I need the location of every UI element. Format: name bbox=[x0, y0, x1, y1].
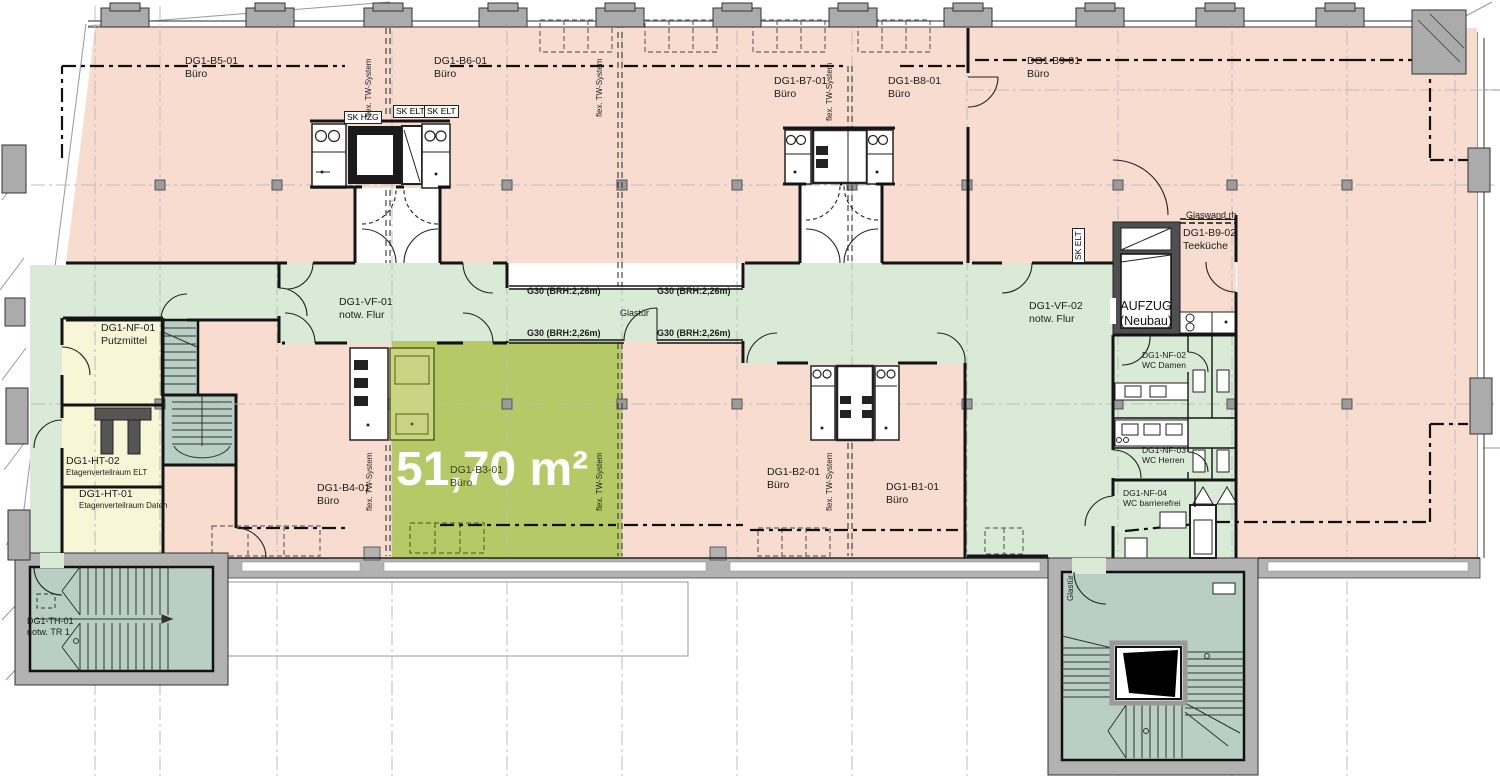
room-type: Büro bbox=[886, 494, 939, 507]
fire-rating-label: G30 (BRH:2,26m) bbox=[657, 328, 731, 338]
room-type: Büro bbox=[450, 477, 503, 490]
flex-tw-label: flex. TW-System bbox=[365, 453, 374, 511]
elevator-name: AUFZUG bbox=[1117, 299, 1175, 314]
room-label-dg1-nf-04: DG1-NF-04WC barrierefrei bbox=[1123, 488, 1181, 508]
flex-tw-label: flex. TW-System bbox=[364, 59, 373, 117]
room-type: Büro bbox=[888, 88, 941, 101]
room-type: Etagenverteilraum Daten bbox=[79, 501, 168, 511]
glass-door-label: Glastür bbox=[620, 308, 649, 319]
room-id: DG1-B4-01 bbox=[317, 482, 370, 495]
room-label-dg1-b3-01: DG1-B3-01Büro bbox=[450, 464, 503, 490]
plan-drawing bbox=[0, 0, 1500, 782]
room-id: DG1-VF-01 bbox=[339, 296, 393, 309]
room-type: WC barrierefrei bbox=[1123, 498, 1181, 508]
fire-rating-label: G30 (BRH:2,26m) bbox=[527, 286, 601, 296]
room-type: Büro bbox=[185, 68, 238, 81]
room-label-dg1-b4-01: DG1-B4-01Büro bbox=[317, 482, 370, 508]
room-type: Büro bbox=[1027, 68, 1080, 81]
room-label-dg1-b6-01: DG1-B6-01Büro bbox=[434, 55, 487, 81]
room-id: DG1-B8-01 bbox=[888, 75, 941, 88]
room-type: notw. TR 1 bbox=[27, 627, 74, 638]
room-id: DG1-B6-01 bbox=[434, 55, 487, 68]
room-id: DG1-VF-02 bbox=[1029, 300, 1083, 313]
elevator-note: (Neubau) bbox=[1117, 314, 1175, 329]
room-dg1-b5-b9-topband-area[interactable] bbox=[66, 28, 1477, 263]
room-label-dg1-b7-01: DG1-B7-01Büro bbox=[774, 75, 827, 101]
room-id: DG1-NF-03 bbox=[1142, 445, 1186, 455]
room-label-dg1-vf-02: DG1-VF-02notw. Flur bbox=[1029, 300, 1083, 326]
room-type: Teeküche bbox=[1183, 240, 1236, 253]
room-label-dg1-nf-02: DG1-NF-02WC Damen bbox=[1142, 350, 1186, 370]
room-fills bbox=[30, 28, 1477, 558]
room-type: Putzmittel bbox=[101, 335, 155, 348]
room-id: DG1-TH-01 bbox=[27, 616, 74, 627]
room-type: Büro bbox=[317, 495, 370, 508]
room-id: DG1-B9-02 bbox=[1183, 227, 1236, 240]
room-type: Büro bbox=[767, 479, 820, 492]
shaft-label-elt: SK ELT bbox=[424, 105, 459, 118]
room-label-dg1-nf-03: DG1-NF-03WC Herren bbox=[1142, 445, 1186, 465]
room-id: DG1-HT-01 bbox=[79, 488, 168, 501]
vestibule-b bbox=[800, 184, 882, 263]
flex-tw-label: flex. TW-System bbox=[825, 63, 834, 121]
room-type: Etagenverteilraum ELT bbox=[66, 468, 147, 478]
flex-tw-label: flex. TW-System bbox=[595, 453, 604, 511]
room-type: Büro bbox=[434, 68, 487, 81]
room-type: WC Damen bbox=[1142, 360, 1186, 370]
room-label-dg1-b9-01: DG1-B9-01Büro bbox=[1027, 55, 1080, 81]
room-id: DG1-NF-01 bbox=[101, 322, 155, 335]
floor-plan: DG1-B5-01Büro DG1-B6-01Büro DG1-B7-01Bür… bbox=[0, 0, 1500, 782]
room-type: Büro bbox=[774, 88, 827, 101]
room-label-dg1-b5-01: DG1-B5-01Büro bbox=[185, 55, 238, 81]
room-id: DG1-B2-01 bbox=[767, 466, 820, 479]
room-id: DG1-B5-01 bbox=[185, 55, 238, 68]
room-type: WC Herren bbox=[1142, 455, 1186, 465]
room-type: notw. Flur bbox=[1029, 313, 1083, 326]
room-id: DG1-NF-02 bbox=[1142, 350, 1186, 360]
fire-rating-label: G30 (BRH:2,26m) bbox=[657, 286, 731, 296]
room-id: DG1-B9-01 bbox=[1027, 55, 1080, 68]
room-label-dg1-ht-01: DG1-HT-01Etagenverteilraum Daten bbox=[79, 488, 168, 511]
shaft-label-elt: SK ELT bbox=[393, 105, 428, 118]
room-id: DG1-B3-01 bbox=[450, 464, 503, 477]
room-label-dg1-ht-02: DG1-HT-02Etagenverteilraum ELT bbox=[66, 455, 147, 478]
vestibule-a bbox=[355, 188, 440, 263]
glass-wall-label: Glaswand rh bbox=[1186, 210, 1237, 221]
flex-tw-label: flex. TW-System bbox=[595, 59, 604, 117]
room-type: notw. Flur bbox=[339, 309, 393, 322]
room-label-dg1-vf-01: DG1-VF-01notw. Flur bbox=[339, 296, 393, 322]
room-label-dg1-b1-01: DG1-B1-01Büro bbox=[886, 481, 939, 507]
fire-rating-label: G30 (BRH:2,26m) bbox=[527, 328, 601, 338]
room-dg1-b9-01-area[interactable] bbox=[1237, 263, 1477, 558]
flex-tw-label: flex. TW-System bbox=[825, 453, 834, 511]
room-id: DG1-HT-02 bbox=[66, 455, 147, 468]
shaft-label-elt: SK ELT bbox=[1072, 228, 1085, 263]
room-label-dg1-b8-01: DG1-B8-01Büro bbox=[888, 75, 941, 101]
elevator-label: AUFZUG(Neubau) bbox=[1117, 299, 1175, 329]
shaft-label-hzg: SK HZG bbox=[344, 111, 382, 124]
room-id: DG1-B7-01 bbox=[774, 75, 827, 88]
room-id: DG1-B1-01 bbox=[886, 481, 939, 494]
room-label-dg1-nf-01: DG1-NF-01Putzmittel bbox=[101, 322, 155, 348]
room-label-dg1-b9-02: DG1-B9-02Teeküche bbox=[1183, 227, 1236, 253]
room-id: DG1-NF-04 bbox=[1123, 488, 1181, 498]
glass-door-label: Glastür bbox=[1066, 575, 1075, 601]
room-label-dg1-b2-01: DG1-B2-01Büro bbox=[767, 466, 820, 492]
room-label-dg1-th-01: DG1-TH-01notw. TR 1 bbox=[27, 616, 74, 638]
